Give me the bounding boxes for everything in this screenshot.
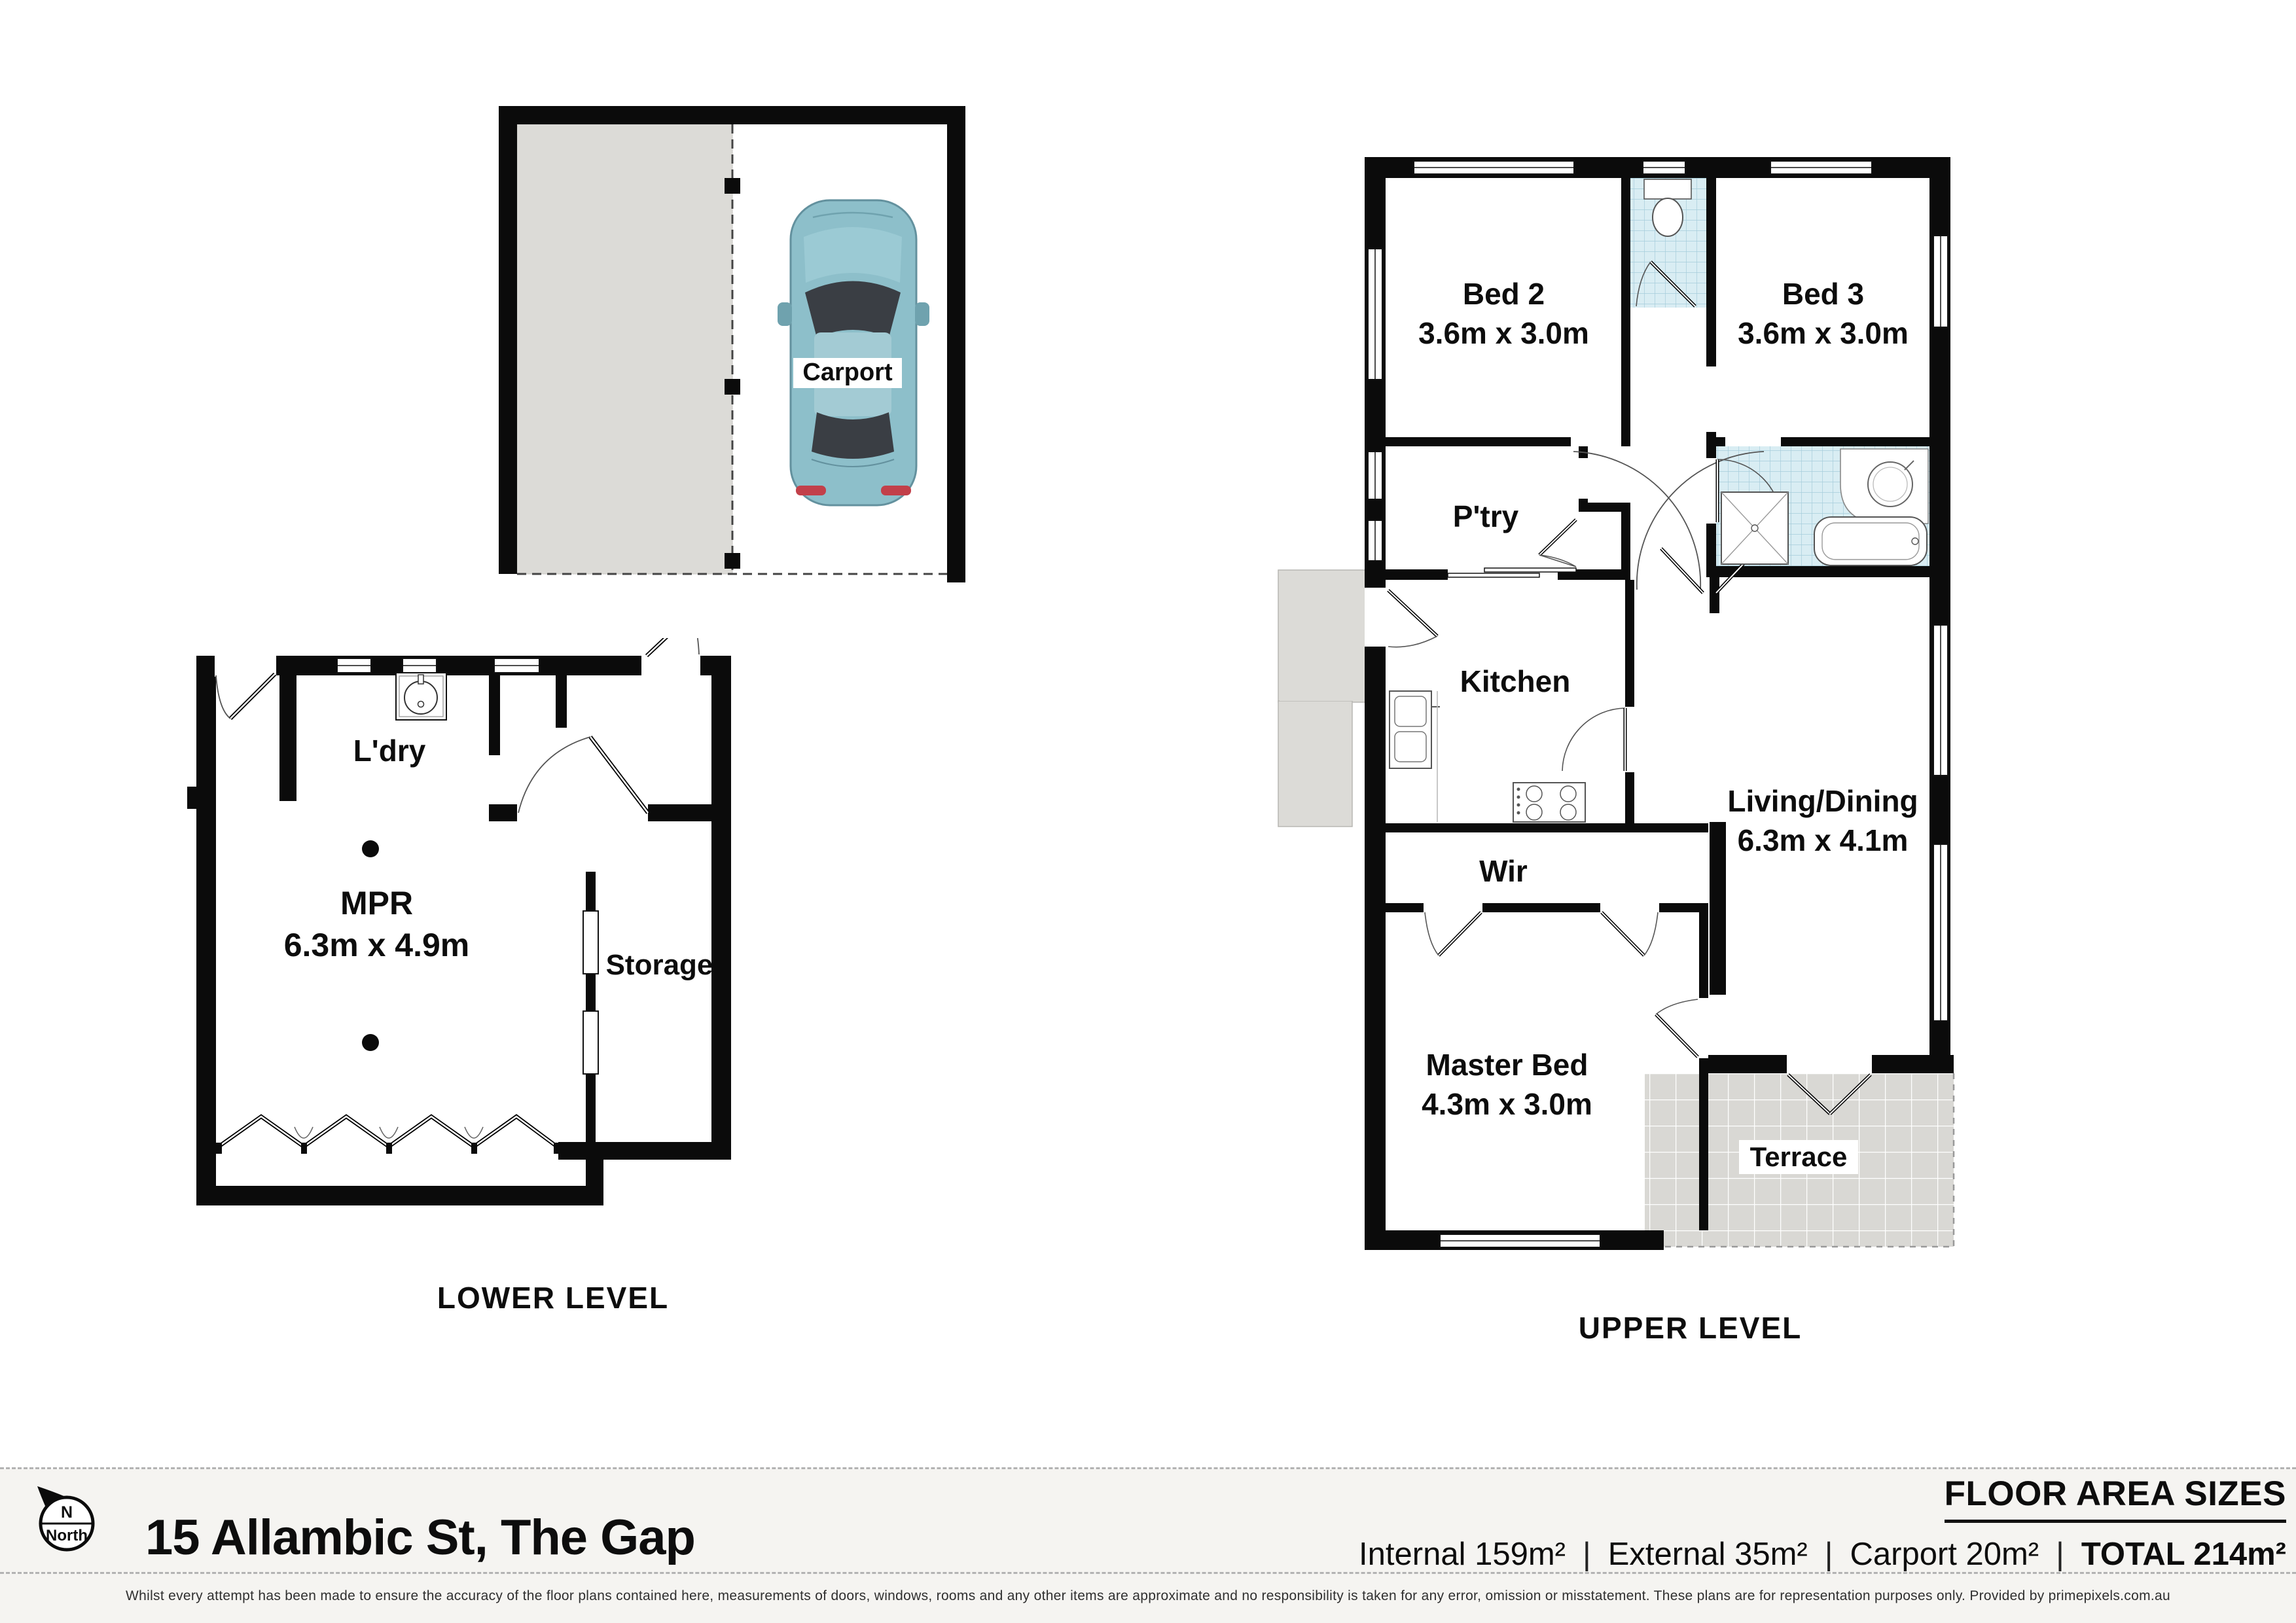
door (1425, 912, 1658, 955)
door (647, 638, 699, 656)
ldry-label: L'dry (324, 732, 455, 771)
area-external: External 35m² (1608, 1537, 1808, 1572)
north-compass-icon (29, 1482, 108, 1564)
disclaimer-text: Whilst every attempt has been made to en… (0, 1588, 2296, 1604)
floorplan-page: Carport (0, 0, 2296, 1623)
shower (1721, 492, 1788, 564)
laundry-sink (396, 673, 446, 720)
bed3-label: Bed 3 3.6m x 3.0m (1710, 275, 1936, 353)
mpr-dims: 6.3m x 4.9m (260, 924, 493, 966)
floor-area-values: Internal 159m²|External 35m²|Carport 20m… (1359, 1536, 2286, 1573)
area-total: TOTAL 214m² (2081, 1537, 2286, 1572)
entry-landing (1278, 570, 1369, 827)
carport-post (725, 178, 740, 194)
area-separator: | (1808, 1537, 1850, 1572)
floor-area-block: FLOOR AREA SIZES Internal 159m²|External… (1359, 1474, 2286, 1573)
area-internal: Internal 159m² (1359, 1537, 1566, 1572)
terrace-label: Terrace (1739, 1140, 1858, 1174)
bed3-name: Bed 3 (1710, 275, 1936, 314)
compass-n-label: N (29, 1503, 104, 1522)
kitchen-label: Kitchen (1433, 662, 1597, 702)
carport-post (725, 553, 740, 569)
carport-drawing (494, 101, 972, 589)
compass-north-label: North (29, 1527, 104, 1545)
property-address: 15 Allambic St, The Gap (145, 1509, 695, 1566)
floor-area-title: FLOOR AREA SIZES (1945, 1474, 2286, 1523)
column (362, 1034, 379, 1051)
area-carport: Carport 20m² (1850, 1537, 2039, 1572)
footer-divider-top (0, 1467, 2296, 1469)
carport-paving (517, 124, 732, 574)
sliding-door (1448, 568, 1576, 577)
carport-label-text: Carport (802, 357, 892, 389)
mpr-name: MPR (260, 882, 493, 924)
master-dims: 4.3m x 3.0m (1384, 1085, 1630, 1124)
carport-label: Carport (793, 358, 902, 388)
door (1562, 708, 1625, 771)
bed2-label: Bed 2 3.6m x 3.0m (1391, 275, 1617, 353)
mpr-label: MPR 6.3m x 4.9m (260, 882, 493, 966)
master-name: Master Bed (1384, 1046, 1630, 1085)
bed2-name: Bed 2 (1391, 275, 1617, 314)
living-dims: 6.3m x 4.1m (1712, 821, 1934, 861)
area-separator: | (2039, 1537, 2081, 1572)
master-label: Master Bed 4.3m x 3.0m (1384, 1046, 1630, 1124)
living-label: Living/Dining 6.3m x 4.1m (1712, 782, 1934, 861)
kitchen-sink (1390, 691, 1440, 768)
carport-post (725, 379, 740, 395)
living-name: Living/Dining (1712, 782, 1934, 821)
bifold-doors (216, 1116, 560, 1154)
storage-label: Storage (596, 946, 723, 984)
door (1388, 590, 1437, 647)
vanity (1840, 449, 1928, 524)
ptry-label: P'try (1420, 497, 1551, 537)
bathtub (1814, 517, 1927, 565)
column (362, 840, 379, 857)
door (518, 737, 648, 813)
bed2-dims: 3.6m x 3.0m (1391, 314, 1617, 353)
door (1656, 999, 1698, 1057)
wir-label: Wir (1451, 852, 1556, 891)
upper-level-title: UPPER LEVEL (1554, 1310, 1826, 1346)
bed3-dims: 3.6m x 3.0m (1710, 314, 1936, 353)
door (216, 674, 275, 719)
stove (1513, 783, 1585, 822)
area-separator: | (1566, 1537, 1608, 1572)
car-top-view (778, 200, 929, 505)
lower-level-title: LOWER LEVEL (419, 1280, 687, 1315)
